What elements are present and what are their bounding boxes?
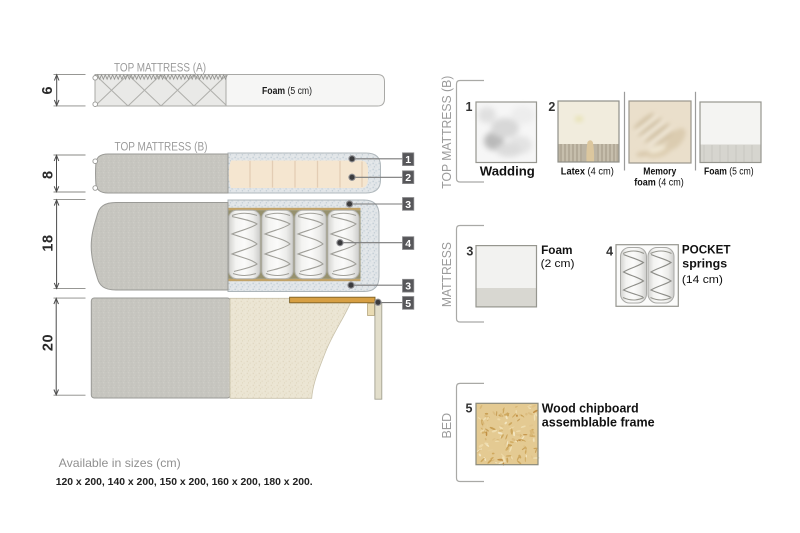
svg-text:Latex (4 cm): Latex (4 cm) <box>561 167 614 178</box>
svg-text:2: 2 <box>548 100 555 114</box>
svg-text:3: 3 <box>466 245 473 259</box>
svg-text:5: 5 <box>466 402 473 416</box>
svg-text:120 x 200, 140 x 200, 150 x 20: 120 x 200, 140 x 200, 150 x 200, 160 x 2… <box>56 476 313 488</box>
svg-text:6: 6 <box>40 86 56 95</box>
svg-text:2: 2 <box>405 172 411 184</box>
svg-text:springs: springs <box>682 258 727 270</box>
svg-text:4: 4 <box>405 238 411 250</box>
svg-text:Memory: Memory <box>643 167 676 178</box>
svg-text:(14 cm): (14 cm) <box>682 274 723 286</box>
svg-text:5: 5 <box>405 298 411 310</box>
svg-text:TOP MATTRESS (B): TOP MATTRESS (B) <box>115 142 208 154</box>
svg-text:1: 1 <box>466 100 473 114</box>
svg-text:(2 cm): (2 cm) <box>541 258 575 270</box>
svg-text:foam (4 cm): foam (4 cm) <box>634 177 684 188</box>
svg-text:1: 1 <box>405 154 411 166</box>
svg-text:3: 3 <box>405 281 411 293</box>
svg-text:4: 4 <box>606 245 613 259</box>
svg-text:18: 18 <box>41 234 57 251</box>
svg-text:20: 20 <box>41 334 57 351</box>
svg-text:Available in sizes (cm): Available in sizes (cm) <box>59 456 181 470</box>
svg-text:Foam (5 cm): Foam (5 cm) <box>704 167 754 178</box>
svg-text:Foam: Foam <box>541 243 572 257</box>
svg-text:assemblable frame: assemblable frame <box>542 414 655 429</box>
svg-text:Wood chipboard: Wood chipboard <box>542 400 639 415</box>
svg-text:TOP MATTRESS (B): TOP MATTRESS (B) <box>440 76 454 189</box>
svg-text:3: 3 <box>405 199 411 211</box>
svg-text:Wadding: Wadding <box>480 164 535 178</box>
svg-text:8: 8 <box>41 170 57 179</box>
svg-text:TOP MATTRESS (A): TOP MATTRESS (A) <box>114 62 206 74</box>
svg-text:MATTRESS: MATTRESS <box>440 242 454 307</box>
svg-text:BED: BED <box>440 413 454 439</box>
svg-text:POCKET: POCKET <box>682 244 731 256</box>
svg-text:Foam (5 cm): Foam (5 cm) <box>262 86 312 97</box>
